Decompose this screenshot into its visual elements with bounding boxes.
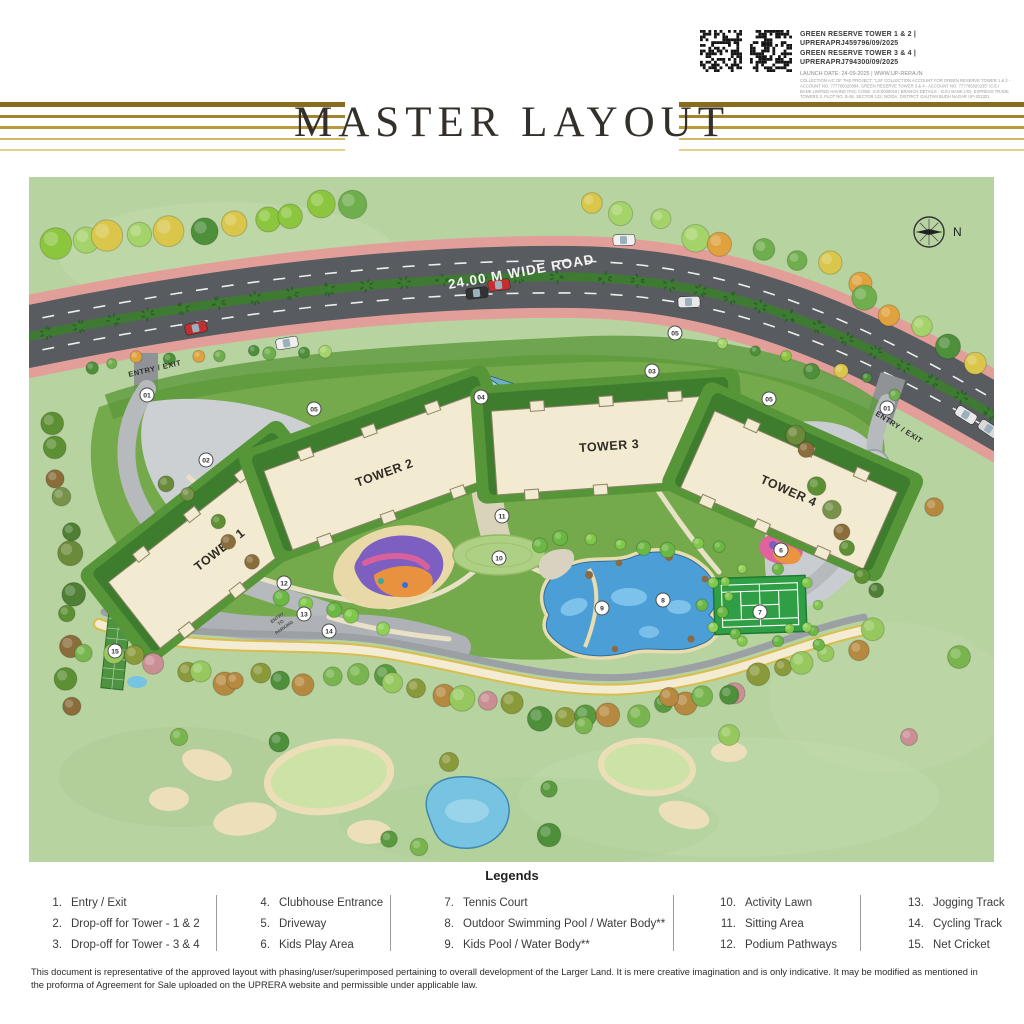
map-marker: 02 xyxy=(199,453,213,467)
tree xyxy=(798,442,814,458)
legend-item: 4.Clubhouse Entrance xyxy=(246,893,383,914)
legend-divider xyxy=(390,895,391,951)
tree xyxy=(852,285,877,310)
tree xyxy=(696,599,708,611)
tree xyxy=(107,359,117,369)
legend-title: Legends xyxy=(0,868,1024,883)
tree xyxy=(307,190,335,218)
map-marker: 11 xyxy=(495,509,509,523)
legend-item-label: Driveway xyxy=(279,914,326,935)
tree xyxy=(724,592,733,601)
tree xyxy=(327,602,342,617)
map-marker-number: 02 xyxy=(202,458,210,465)
tree xyxy=(298,347,309,358)
tree xyxy=(834,524,850,540)
legend-item: 13.Jogging Track xyxy=(900,893,1005,914)
map-marker: 14 xyxy=(322,624,336,638)
tree xyxy=(273,590,289,606)
legend-column: 7.Tennis Court8.Outdoor Swimming Pool / … xyxy=(430,893,665,956)
tree xyxy=(527,706,552,731)
qr-code xyxy=(750,30,792,72)
map-marker: 9 xyxy=(595,601,609,615)
tree xyxy=(790,651,813,674)
tree xyxy=(46,470,64,488)
legend-divider xyxy=(673,895,674,951)
tree xyxy=(323,667,342,686)
tree xyxy=(772,563,784,575)
legend-column: 4.Clubhouse Entrance5.Driveway6.Kids Pla… xyxy=(246,893,383,956)
legend-item: 7.Tennis Court xyxy=(430,893,665,914)
tree xyxy=(849,640,870,661)
map-marker: 7 xyxy=(753,605,767,619)
tree xyxy=(582,193,603,214)
tree xyxy=(869,583,884,598)
map-marker: 6 xyxy=(774,543,788,557)
legend-column: 10.Activity Lawn11.Sitting Area12.Podium… xyxy=(712,893,837,956)
tree xyxy=(682,225,710,253)
legend-item-label: Clubhouse Entrance xyxy=(279,893,383,914)
legend-item-label: Net Cricket xyxy=(933,935,990,956)
tree xyxy=(532,538,547,553)
pond xyxy=(426,777,509,848)
legend-divider xyxy=(860,895,861,951)
tree xyxy=(43,436,66,459)
tree xyxy=(553,531,568,546)
tree xyxy=(269,732,289,752)
tree xyxy=(738,564,747,573)
tree xyxy=(343,608,358,623)
master-layout-page: GREEN RESERVE TOWER 1 & 2 | UPRERAPRJ459… xyxy=(0,0,1024,1024)
tree xyxy=(747,663,770,686)
legend-item-number: 3. xyxy=(38,935,62,956)
tree xyxy=(719,725,740,746)
tree xyxy=(248,345,259,356)
tree xyxy=(221,534,236,549)
tree xyxy=(807,477,826,496)
map-marker-number: 11 xyxy=(498,514,505,521)
map-marker: 13 xyxy=(297,607,311,621)
legend-divider xyxy=(216,895,217,951)
tree xyxy=(347,663,369,685)
legend-item-label: Cycling Track xyxy=(933,914,1002,935)
map-marker: 12 xyxy=(277,576,291,590)
tree xyxy=(41,412,64,435)
legend-item: 1.Entry / Exit xyxy=(38,893,200,914)
car xyxy=(678,296,700,308)
map-marker-number: 01 xyxy=(143,393,151,400)
legend-item-number: 5. xyxy=(246,914,270,935)
tree xyxy=(693,538,704,549)
legend-item-label: Activity Lawn xyxy=(745,893,812,914)
tree xyxy=(158,476,174,492)
legend-item: 12.Podium Pathways xyxy=(712,935,837,956)
legend-item-number: 1. xyxy=(38,893,62,914)
tree xyxy=(775,659,792,676)
legend: 1.Entry / Exit2.Drop-off for Tower - 1 &… xyxy=(0,893,1024,955)
tree xyxy=(878,305,899,326)
map-marker-number: 13 xyxy=(300,612,308,619)
tree xyxy=(125,645,144,664)
tree xyxy=(501,692,523,714)
legend-column: 1.Entry / Exit2.Drop-off for Tower - 1 &… xyxy=(38,893,200,956)
tree xyxy=(861,618,884,641)
tree xyxy=(925,498,944,517)
tree xyxy=(737,636,747,646)
tree xyxy=(381,831,398,848)
legend-item-number: 6. xyxy=(246,935,270,956)
swimming-pool-complex xyxy=(539,549,716,656)
tree xyxy=(251,663,271,683)
tree xyxy=(211,514,225,528)
tree xyxy=(834,364,848,378)
tree xyxy=(63,523,81,541)
tree xyxy=(449,686,475,712)
legend-item-label: Entry / Exit xyxy=(71,893,127,914)
legend-item-label: Drop-off for Tower - 3 & 4 xyxy=(71,935,200,956)
tree xyxy=(912,316,933,337)
map-marker: 8 xyxy=(656,593,670,607)
tree xyxy=(130,351,142,363)
tree xyxy=(823,500,842,519)
tree xyxy=(86,362,98,374)
tree xyxy=(862,373,872,383)
tree xyxy=(245,554,260,569)
tree xyxy=(781,351,792,362)
tree xyxy=(191,218,218,245)
tree xyxy=(717,338,727,348)
tree xyxy=(439,752,458,771)
tree xyxy=(193,350,205,362)
map-marker-number: 10 xyxy=(495,556,503,563)
tree xyxy=(787,251,807,271)
tree xyxy=(608,202,632,226)
tree xyxy=(256,207,281,232)
legend-item: 14.Cycling Track xyxy=(900,914,1005,935)
tree xyxy=(75,644,93,662)
qr-code xyxy=(700,30,742,72)
tree xyxy=(692,686,713,707)
tree xyxy=(271,671,290,690)
map-marker-number: 05 xyxy=(671,331,679,338)
tree xyxy=(382,672,403,693)
map-marker-number: 7 xyxy=(758,610,762,617)
map-marker-number: 14 xyxy=(325,629,333,636)
legend-item: 5.Driveway xyxy=(246,914,383,935)
legend-item-number: 15. xyxy=(900,935,924,956)
legend-item-number: 4. xyxy=(246,893,270,914)
car xyxy=(613,234,635,246)
legend-item-number: 10. xyxy=(712,893,736,914)
tree xyxy=(854,568,869,583)
legend-item-number: 7. xyxy=(430,893,454,914)
tree xyxy=(575,717,592,734)
tree xyxy=(707,232,731,256)
map-marker: 04 xyxy=(474,390,488,404)
legend-item-number: 12. xyxy=(712,935,736,956)
map-marker: 10 xyxy=(492,551,506,565)
legend-item: 15.Net Cricket xyxy=(900,935,1005,956)
page-title: MASTER LAYOUT xyxy=(0,98,1024,147)
legend-column: 13.Jogging Track14.Cycling Track15.Net C… xyxy=(900,893,1005,956)
tree xyxy=(407,679,426,698)
tree xyxy=(785,624,795,634)
tree xyxy=(541,781,558,798)
tree xyxy=(127,222,151,246)
gold-line xyxy=(0,149,345,151)
legend-item-label: Podium Pathways xyxy=(745,935,837,956)
tree xyxy=(143,653,164,674)
legend-item-label: Outdoor Swimming Pool / Water Body** xyxy=(463,914,665,935)
legend-item-label: Jogging Track xyxy=(933,893,1005,914)
legend-item-label: Tennis Court xyxy=(463,893,528,914)
legend-item-number: 9. xyxy=(430,935,454,956)
gold-line xyxy=(679,149,1024,151)
map-marker: 15 xyxy=(108,644,122,658)
tree xyxy=(153,216,184,247)
map-marker-number: 12 xyxy=(280,581,288,588)
tree xyxy=(54,668,77,691)
map-marker-number: 15 xyxy=(111,649,119,656)
tree xyxy=(63,697,81,715)
tree xyxy=(717,606,729,618)
tree xyxy=(889,389,900,400)
tree xyxy=(319,345,332,358)
tree xyxy=(62,583,86,607)
tree xyxy=(708,622,718,632)
legend-item-label: Drop-off for Tower - 1 & 2 xyxy=(71,914,200,935)
tree xyxy=(802,622,812,632)
tree xyxy=(750,346,760,356)
tree xyxy=(813,639,825,651)
tree xyxy=(91,220,122,251)
rera-launch-date: LAUNCH DATE: 24-09-2025 | WWW.UP-RERA.IN xyxy=(800,71,1010,77)
tree xyxy=(819,251,842,274)
legend-item-number: 14. xyxy=(900,914,924,935)
tree xyxy=(227,672,244,689)
legend-item-number: 8. xyxy=(430,914,454,935)
tree xyxy=(659,687,678,706)
tree xyxy=(720,685,739,704)
tree xyxy=(628,705,650,727)
map-marker-number: 05 xyxy=(765,397,773,404)
legend-item: 8.Outdoor Swimming Pool / Water Body** xyxy=(430,914,665,935)
tree xyxy=(713,541,725,553)
map-marker-number: 05 xyxy=(310,407,318,414)
tree xyxy=(537,823,561,847)
tree xyxy=(660,542,675,557)
legend-item: 9.Kids Pool / Water Body** xyxy=(430,935,665,956)
tree xyxy=(948,646,971,669)
legend-item-number: 2. xyxy=(38,914,62,935)
tree xyxy=(190,661,211,682)
map-marker-number: 9 xyxy=(600,606,604,613)
tree xyxy=(708,577,719,588)
legend-item: 6.Kids Play Area xyxy=(246,935,383,956)
legend-item: 10.Activity Lawn xyxy=(712,893,837,914)
map-marker-number: 8 xyxy=(661,598,665,605)
tree xyxy=(555,707,575,727)
legend-item: 3.Drop-off for Tower - 3 & 4 xyxy=(38,935,200,956)
tree xyxy=(721,577,730,586)
tree xyxy=(636,541,650,555)
map-marker-number: 6 xyxy=(779,548,783,555)
tree xyxy=(813,600,823,610)
legend-item-number: 13. xyxy=(900,893,924,914)
tree xyxy=(615,539,626,550)
tree xyxy=(278,204,303,229)
tree xyxy=(596,703,620,727)
legend-item-label: Kids Play Area xyxy=(279,935,354,956)
map-marker: 03 xyxy=(645,364,659,378)
tree xyxy=(839,540,854,555)
tree xyxy=(804,363,820,379)
tree xyxy=(170,728,187,745)
legend-item-label: Sitting Area xyxy=(745,914,804,935)
tree xyxy=(58,541,83,566)
map-marker-number: 04 xyxy=(477,395,485,402)
legend-item: 11.Sitting Area xyxy=(712,914,837,935)
tree xyxy=(59,605,76,622)
tree xyxy=(753,239,775,261)
master-plan-illustration: 24.00 M WIDE ROAD xyxy=(29,177,994,862)
tree xyxy=(936,334,961,359)
tree xyxy=(263,347,276,360)
small-water xyxy=(127,676,147,688)
tree xyxy=(802,577,813,588)
tree xyxy=(376,622,389,635)
legend-item: 2.Drop-off for Tower - 1 & 2 xyxy=(38,914,200,935)
tree xyxy=(52,487,71,506)
map-marker: 01 xyxy=(140,388,154,402)
tree xyxy=(181,488,194,501)
tree xyxy=(338,190,366,218)
tree xyxy=(410,838,428,856)
tree xyxy=(40,228,72,260)
tree xyxy=(964,352,986,374)
tree xyxy=(651,209,671,229)
legend-item-number: 11. xyxy=(712,914,736,935)
disclaimer-text: This document is representative of the a… xyxy=(31,966,993,992)
map-marker-number: 03 xyxy=(648,369,656,376)
tree xyxy=(772,636,783,647)
tree xyxy=(214,350,226,362)
map-marker: 05 xyxy=(762,392,776,406)
tree xyxy=(478,691,497,710)
map-marker: 05 xyxy=(668,326,682,340)
compass-north-label: N xyxy=(953,225,962,239)
rera-line-1: GREEN RESERVE TOWER 1 & 2 | UPRERAPRJ459… xyxy=(800,30,1010,49)
legend-item-label: Kids Pool / Water Body** xyxy=(463,935,590,956)
map-marker: 05 xyxy=(307,402,321,416)
tree xyxy=(901,729,918,746)
tree xyxy=(292,674,314,696)
rera-line-2: GREEN RESERVE TOWER 3 & 4 | UPRERAPRJ794… xyxy=(800,49,1010,68)
tree xyxy=(222,211,247,236)
tree xyxy=(585,533,597,545)
